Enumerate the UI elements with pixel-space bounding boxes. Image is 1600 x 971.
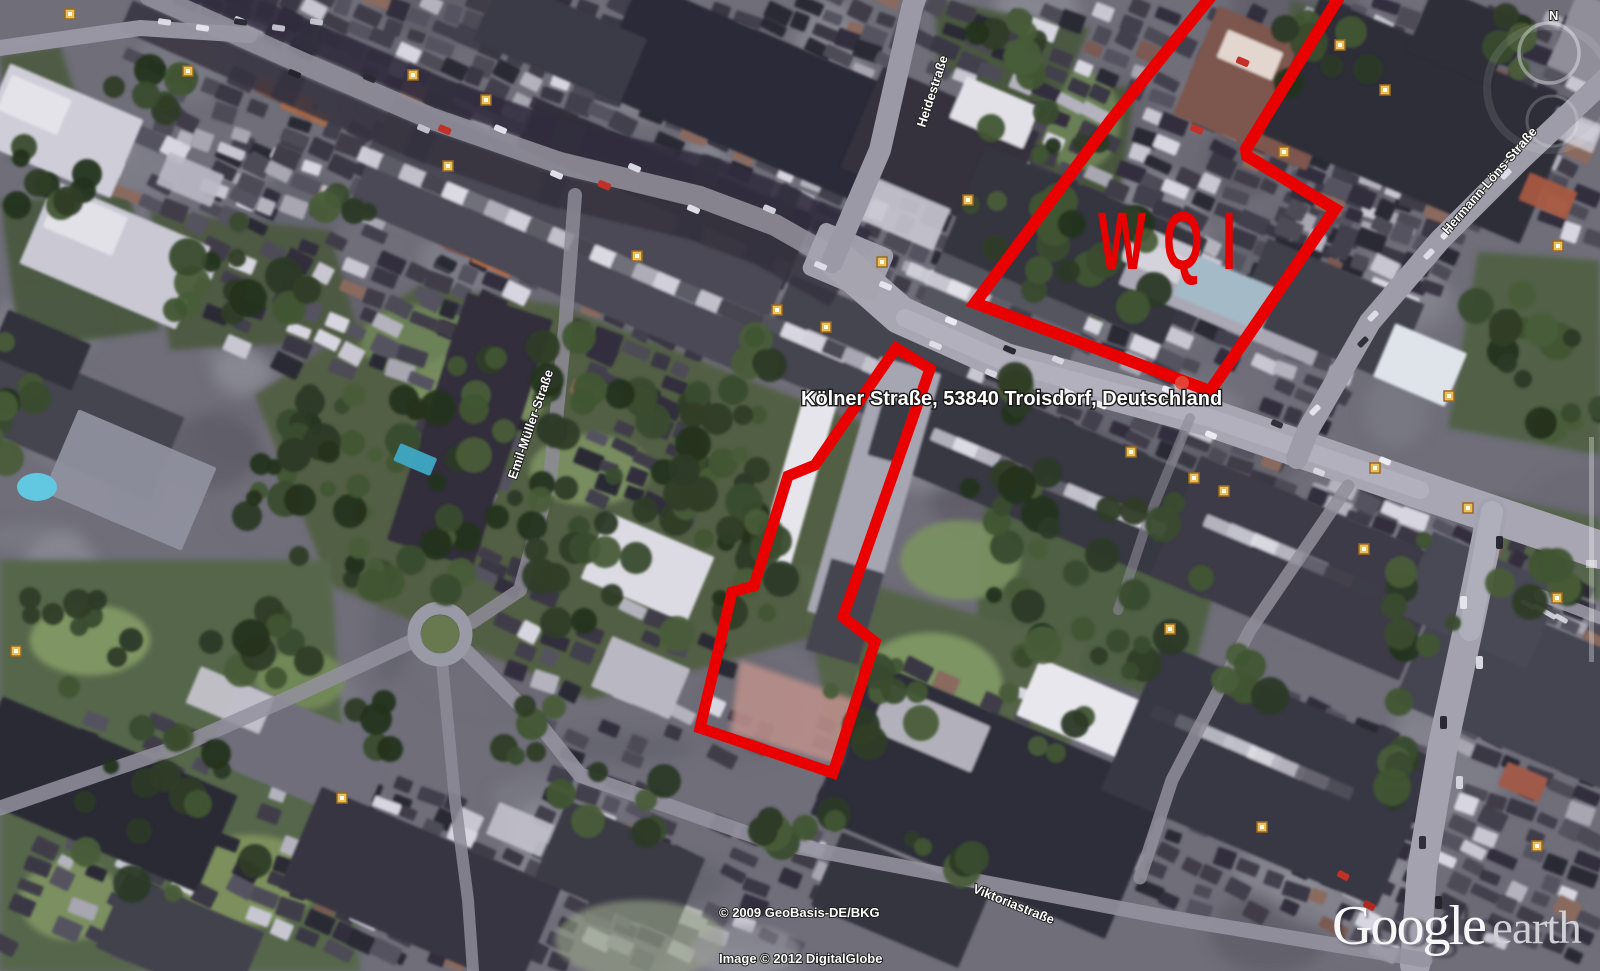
svg-text:© 2009 GeoBasis-DE/BKG: © 2009 GeoBasis-DE/BKG <box>719 905 880 920</box>
svg-text:Image © 2012 DigitalGlobe: Image © 2012 DigitalGlobe <box>719 951 882 966</box>
svg-text:Kölner Straße, 53840 Troisdorf: Kölner Straße, 53840 Troisdorf, Deutschl… <box>801 388 1222 410</box>
svg-text:earth: earth <box>1492 902 1581 954</box>
svg-text:N: N <box>1549 8 1558 23</box>
svg-text:Google: Google <box>1332 895 1485 957</box>
svg-text:W: W <box>1098 196 1146 287</box>
svg-text:Q: Q <box>1163 196 1203 287</box>
svg-text:I: I <box>1222 196 1236 287</box>
